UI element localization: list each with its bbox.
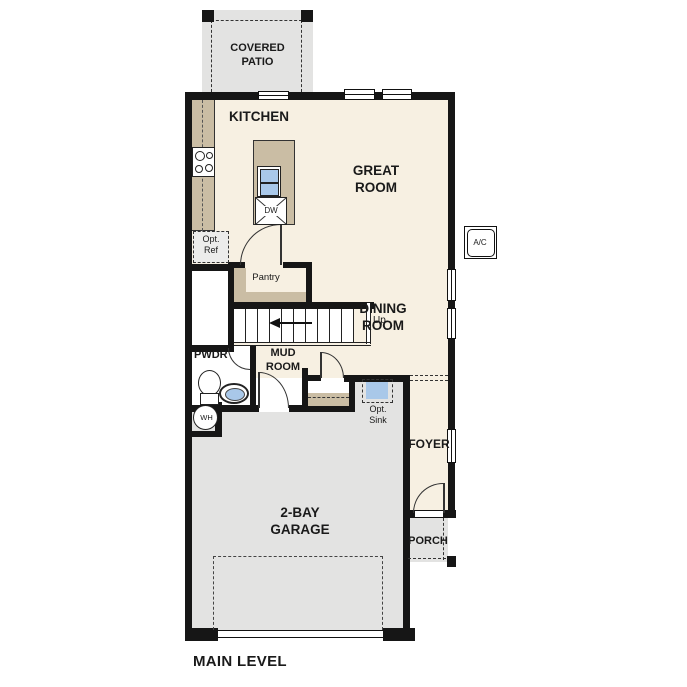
pwdr-sink <box>219 383 249 404</box>
porch-post <box>447 556 456 567</box>
dw-label: DW <box>260 206 282 216</box>
burner-icon <box>206 152 213 159</box>
kitchen-sink <box>257 166 281 197</box>
floor-plan: COVERED PATIO Up <box>0 0 687 687</box>
mud-room-label: MUD ROOM <box>253 347 313 375</box>
sink-basin <box>260 169 279 183</box>
wall-kitchen-landing <box>185 264 230 271</box>
front-door-leaf <box>443 483 445 513</box>
window-dining-2 <box>447 308 456 339</box>
wall-left <box>185 92 192 641</box>
water-heater: WH <box>193 405 218 430</box>
covered-patio-label: COVERED PATIO <box>202 42 313 70</box>
window-patio <box>258 91 289 100</box>
pantry-label: Pantry <box>234 272 298 284</box>
garage-overhead-door <box>218 630 383 638</box>
plan-title: MAIN LEVEL <box>193 653 313 672</box>
wall-top <box>185 92 455 100</box>
window-great-room-2 <box>382 89 412 100</box>
foyer-label: FOYER <box>408 437 450 452</box>
window-dining-1 <box>447 269 456 301</box>
opt-sink-label: Opt. Sink <box>360 404 396 427</box>
stair-landing-floor <box>192 271 228 345</box>
wall-garage-right <box>403 375 410 636</box>
wall-closet-bottom <box>302 406 355 412</box>
opt-ref-label: Opt. Ref <box>193 234 229 257</box>
stair-direction-line <box>279 322 312 324</box>
stair-direction-arrow <box>269 318 280 328</box>
patio-post-left <box>202 10 214 22</box>
pwdr-sink-basin <box>225 388 245 401</box>
patio-post-right <box>301 10 313 22</box>
pwdr-label: PWDR <box>192 349 240 363</box>
burner-icon <box>205 164 213 172</box>
stair-bottom-edge <box>234 342 371 346</box>
kitchen-label: KITCHEN <box>214 109 304 126</box>
ac-label: A/C <box>465 238 495 248</box>
window-great-room-1 <box>344 89 375 100</box>
toilet-tank <box>200 393 219 405</box>
burner-icon <box>195 151 205 161</box>
stair-treads <box>234 309 354 342</box>
foyer-ceiling-dash <box>410 375 448 381</box>
burner-icon <box>195 165 203 173</box>
garage-stub-right <box>383 628 415 641</box>
cooktop <box>192 147 215 177</box>
opt-sink <box>366 382 388 399</box>
garage-label: 2-BAY GARAGE <box>255 505 345 539</box>
wall-garage-top-b <box>289 405 302 412</box>
porch-label: PORCH <box>407 535 449 549</box>
closet-rod-line <box>308 397 349 399</box>
dishwasher: DW <box>255 197 287 225</box>
great-room-label: GREAT ROOM <box>336 163 416 197</box>
ac-unit: A/C <box>464 226 497 259</box>
sink-basin <box>260 183 279 196</box>
wall-closet-right <box>349 378 355 412</box>
wh-label: WH <box>194 413 219 422</box>
porch-dash-bottom <box>408 558 446 560</box>
water-heater-wall-h <box>192 431 222 437</box>
garage-door-setback <box>213 556 383 630</box>
dining-room-label: DINING ROOM <box>343 301 423 335</box>
coat-closet-shelf <box>308 393 349 406</box>
